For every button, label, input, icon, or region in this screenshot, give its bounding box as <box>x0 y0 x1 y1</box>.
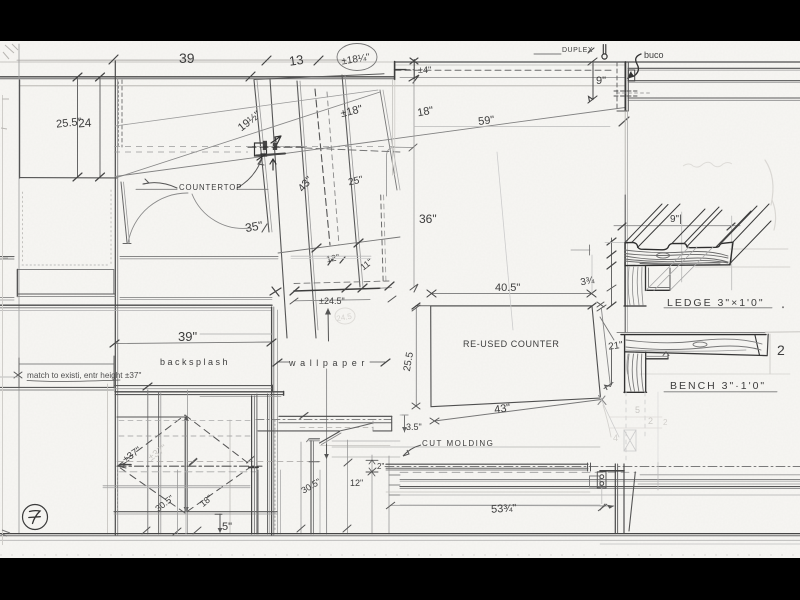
svg-text:36": 36" <box>419 212 437 226</box>
svg-text:43": 43" <box>494 402 512 416</box>
svg-text:COUNTERTOP: COUNTERTOP <box>179 183 242 192</box>
svg-text:40.5": 40.5" <box>495 282 520 294</box>
svg-text:2: 2 <box>663 418 668 427</box>
svg-text:RE-USED COUNTER: RE-USED COUNTER <box>463 339 560 349</box>
svg-text:±24.5": ±24.5" <box>319 296 345 306</box>
svg-text:DUPLEX: DUPLEX <box>562 47 593 54</box>
svg-text:24: 24 <box>78 115 93 130</box>
svg-text:59": 59" <box>478 114 496 128</box>
svg-text:21": 21" <box>608 340 625 353</box>
svg-text:39": 39" <box>178 329 197 344</box>
svg-text:2": 2" <box>377 462 384 471</box>
svg-text:CUT MOLDING: CUT MOLDING <box>422 439 494 448</box>
svg-text:5: 5 <box>635 405 640 415</box>
svg-text:13: 13 <box>288 52 304 69</box>
svg-text:buco: buco <box>644 50 664 60</box>
svg-text:53¾": 53¾" <box>491 502 517 515</box>
svg-text:2: 2 <box>777 342 785 358</box>
svg-text:39: 39 <box>179 50 195 66</box>
svg-text:2: 2 <box>648 416 653 426</box>
svg-text:3.5": 3.5" <box>406 422 422 432</box>
svg-text:BENCH 3"·1'0": BENCH 3"·1'0" <box>670 380 766 392</box>
svg-text:LEDGE 3"×1'0": LEDGE 3"×1'0" <box>667 297 765 309</box>
svg-text:±4": ±4" <box>418 65 431 75</box>
svg-text:backsplash: backsplash <box>160 357 230 367</box>
svg-text:9"|: 9"| <box>670 214 682 225</box>
svg-text:9": 9" <box>596 75 606 87</box>
svg-text:12": 12" <box>350 478 363 488</box>
svg-text:5": 5" <box>222 521 232 533</box>
svg-text:match to existi, entr height ±: match to existi, entr height ±37" <box>27 371 141 380</box>
svg-text:wallpaper: wallpaper <box>288 358 369 368</box>
svg-text:4: 4 <box>613 433 618 443</box>
